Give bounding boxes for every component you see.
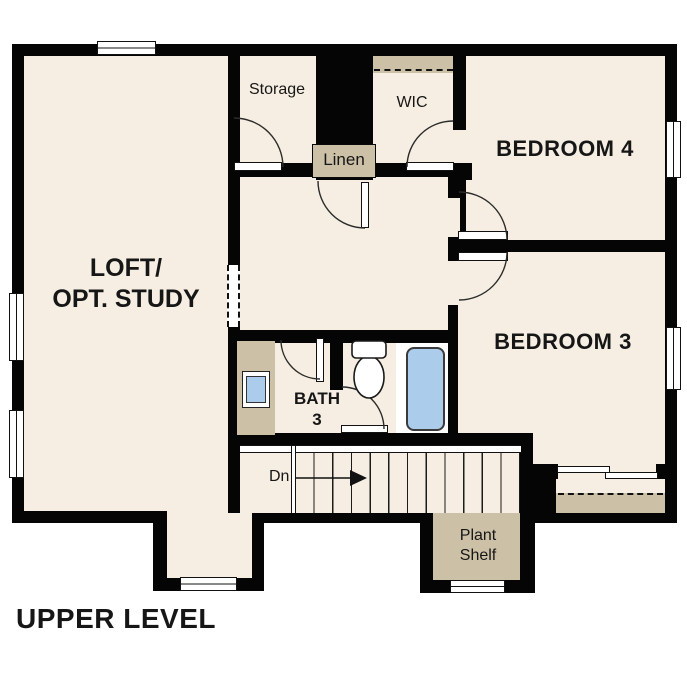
stair-top-edge [240,445,521,453]
bedroom-divider-wall [448,240,665,252]
plant-shelf-label: Plant Shelf [460,526,496,566]
storage-label: Storage [249,81,305,99]
loft-label-line1: LOFT/ [52,253,199,284]
linen-label: Linen [323,150,365,170]
wic-door [406,162,454,171]
linen-door [361,182,369,228]
loft-bumpout-floor [167,511,252,578]
bath3-north-wall-east [317,330,448,343]
window-bedroom3 [666,327,681,390]
loft-label-line2: OPT. STUDY [52,284,199,315]
wic-shelf-dashed-line [374,69,453,71]
window-left-upper [9,293,24,361]
bath3-label-line2: 3 [294,409,340,430]
window-top-loft [97,41,156,55]
stair-east-wall [520,440,533,513]
storage-floor [237,56,316,163]
toilet-partition-wall [330,343,343,390]
closet-door-stub-west [533,464,558,479]
loft-east-wall-north [228,56,240,265]
bedroom3-label: BEDROOM 3 [494,329,632,355]
wic-floor [373,73,453,163]
stair-down-label: Dn [269,468,289,486]
closet-sliding-door-right [605,472,658,479]
hall-east-wall [448,177,460,198]
loft-hall-opening [227,265,240,327]
bedroom4-label: BEDROOM 4 [496,136,634,162]
floor-plan: LOFT/ OPT. STUDY Storage WIC Linen BEDRO… [0,0,687,687]
vanity-sink [242,371,270,408]
window-left-lower [9,410,24,478]
closet-shelf-dashed-line [558,493,663,495]
window-loft-bumpout [180,577,237,591]
bathtub [406,347,445,431]
bedroom3-floor-south [533,433,665,468]
page-title: UPPER LEVEL [16,603,216,635]
closet-shelf [556,493,665,513]
bath3-label-line1: BATH [294,388,340,409]
closet-sliding-door-left [557,466,610,473]
wic-bedroom4-wall [453,56,466,130]
storage-door [234,162,282,171]
wic-south-wall [373,163,407,177]
storage-south-wall [282,163,316,177]
sink-basin [246,376,266,403]
bedroom3-door [458,252,508,261]
plant-shelf-label-line2: Shelf [460,546,496,566]
bedroom4-floor-west [453,130,466,163]
stair-treads [296,453,520,513]
window-plant-shelf [450,580,505,593]
bedroom4-door [458,231,508,240]
bath3-entry-door [316,338,324,382]
plant-shelf-label-line1: Plant [460,526,496,546]
loft-label: LOFT/ OPT. STUDY [52,253,199,315]
window-bedroom4 [666,121,681,178]
bedroom3-west-wall [448,305,458,446]
bath3-inner-door [341,425,388,433]
hall-floor [238,177,460,330]
wic-label: WIC [396,94,427,112]
bath3-label: BATH 3 [294,388,340,430]
